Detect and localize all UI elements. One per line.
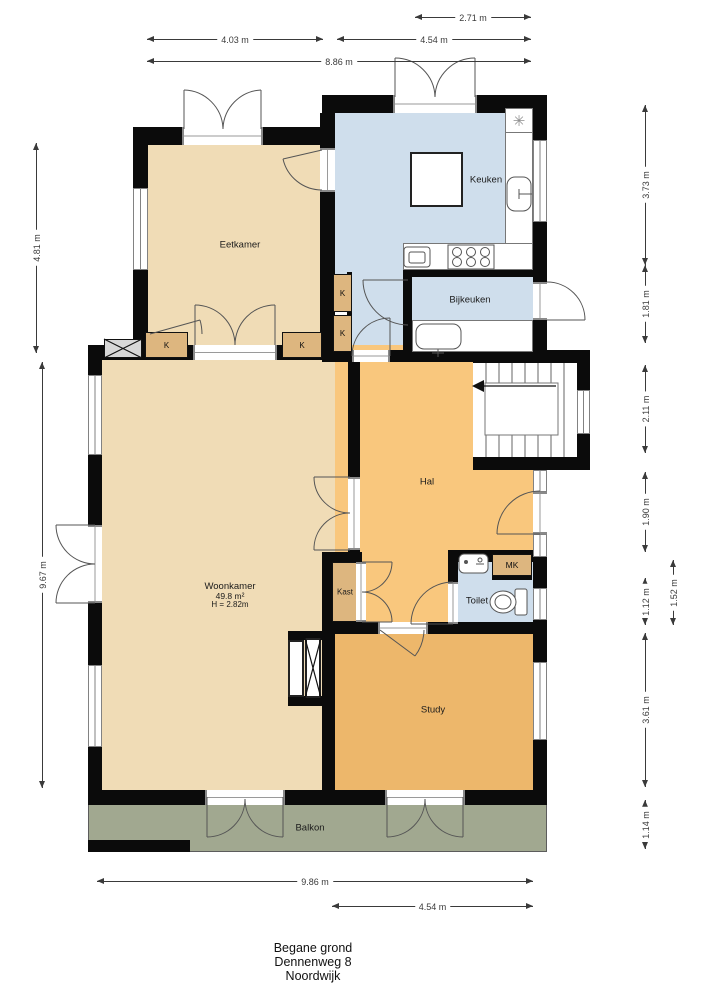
title-floor: Begane grond bbox=[163, 941, 463, 955]
dim-left-481-label: 4.81 m bbox=[32, 230, 42, 266]
label-woonkamer: Woonkamer 49.8 m² H = 2.82m bbox=[204, 582, 255, 609]
label-balkon: Balkon bbox=[295, 823, 324, 834]
dim-bottom-454-label: 4.54 m bbox=[415, 902, 451, 912]
kitchen-fixtures bbox=[404, 177, 532, 357]
dim-right-181: 1.81 m bbox=[645, 265, 646, 343]
title-city: Noordwijk bbox=[163, 969, 463, 983]
dim-left-967-label: 9.67 m bbox=[38, 557, 48, 593]
floorplan-canvas: K K K K MK ✳ bbox=[0, 0, 707, 1000]
dim-bottom-454: 4.54 m bbox=[332, 906, 533, 907]
stair-direction-arrow bbox=[472, 380, 484, 392]
dim-right-211: 2.11 m bbox=[645, 365, 646, 453]
bijkeuken-sink-icon bbox=[416, 324, 461, 349]
dim-right-373-label: 3.73 m bbox=[641, 167, 651, 203]
label-woonkamer-height: H = 2.82m bbox=[204, 601, 255, 610]
label-study: Study bbox=[421, 705, 445, 716]
dim-right-152-label: 1.52 m bbox=[669, 575, 679, 611]
dim-right-181-label: 1.81 m bbox=[641, 286, 651, 322]
dim-top-271-label: 2.71 m bbox=[455, 13, 491, 23]
dim-top-403: 4.03 m bbox=[147, 39, 323, 40]
dim-left-967: 9.67 m bbox=[42, 362, 43, 788]
oven-icon bbox=[404, 247, 430, 267]
dim-top-454: 4.54 m bbox=[337, 39, 531, 40]
dim-right-190: 1.90 m bbox=[645, 472, 646, 552]
dim-top-886-label: 8.86 m bbox=[321, 57, 357, 67]
dim-bottom-986-label: 9.86 m bbox=[297, 877, 333, 887]
dim-left-481: 4.81 m bbox=[36, 143, 37, 353]
door-swing-arcs bbox=[56, 58, 585, 837]
label-bijkeuken: Bijkeuken bbox=[449, 295, 490, 306]
label-eetkamer: Eetkamer bbox=[220, 240, 261, 251]
dim-bottom-986: 9.86 m bbox=[97, 881, 533, 882]
dim-right-114-label: 1.14 m bbox=[641, 807, 651, 843]
title-street: Dennenweg 8 bbox=[163, 955, 463, 969]
chimney-x-marks bbox=[104, 339, 321, 698]
label-hal: Hal bbox=[420, 477, 434, 488]
dim-right-361-label: 3.61 m bbox=[641, 692, 651, 728]
dim-right-190-label: 1.90 m bbox=[641, 494, 651, 530]
title-block: Begane grond Dennenweg 8 Noordwijk bbox=[163, 941, 463, 983]
staircase bbox=[472, 363, 564, 457]
plan-detail-overlay bbox=[0, 0, 707, 1000]
dim-top-271: 2.71 m bbox=[415, 17, 531, 18]
dim-right-114: 1.14 m bbox=[645, 800, 646, 849]
dim-right-112: 1.12 m bbox=[645, 578, 646, 625]
label-kast: Kast bbox=[337, 588, 353, 597]
dim-right-361: 3.61 m bbox=[645, 633, 646, 787]
toilet-bowl-icon bbox=[515, 589, 527, 615]
label-keuken: Keuken bbox=[470, 175, 502, 186]
dim-right-211-label: 2.11 m bbox=[641, 392, 651, 427]
dim-right-373: 3.73 m bbox=[645, 105, 646, 265]
dim-top-403-label: 4.03 m bbox=[217, 35, 253, 45]
dim-top-454-label: 4.54 m bbox=[416, 35, 452, 45]
dim-right-112-label: 1.12 m bbox=[641, 584, 651, 620]
dim-right-152: 1.52 m bbox=[673, 560, 674, 625]
dim-top-886: 8.86 m bbox=[147, 61, 531, 62]
label-toilet: Toilet bbox=[466, 596, 488, 607]
